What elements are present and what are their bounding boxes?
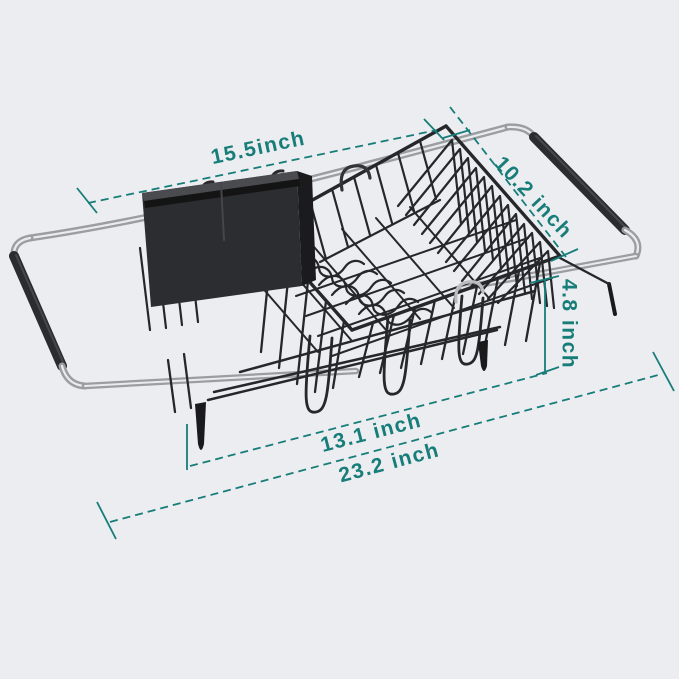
dimension-label-top-width: 15.5inch: [209, 127, 308, 169]
diagram-canvas: 15.5inch 10.2 inch 4.8 inch 13.1 inch: [0, 0, 679, 679]
end-tick: [77, 188, 97, 213]
dimension-bottom-width: 13.1 inch: [187, 373, 547, 470]
dimension-label-height: 4.8 inch: [558, 279, 581, 369]
end-tick: [653, 352, 674, 391]
dimension-line: [110, 374, 662, 522]
right-foot: [478, 340, 488, 371]
product-dimension-diagram: 15.5inch 10.2 inch 4.8 inch 13.1 inch: [0, 0, 679, 679]
left-grip: [14, 256, 62, 366]
utensil-caddy: [142, 171, 316, 307]
end-tick: [536, 367, 559, 375]
left-foot: [195, 402, 206, 450]
back-right-foot: [609, 284, 615, 314]
